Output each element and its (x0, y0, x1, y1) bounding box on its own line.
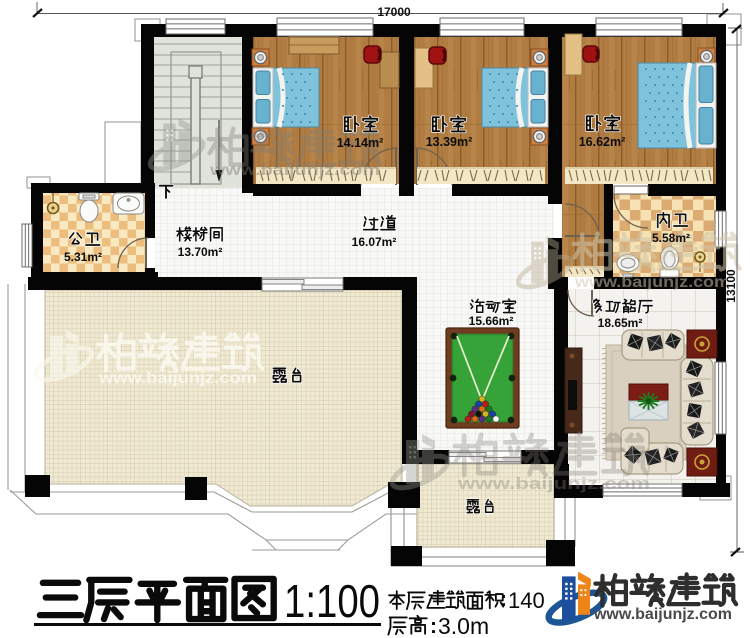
svg-text:www.baijunjz.com: www.baijunjz.com (209, 162, 380, 179)
svg-text::: : (500, 588, 507, 611)
svg-text:www.baijunjz.com: www.baijunjz.com (574, 274, 730, 291)
svg-text:13.39m²: 13.39m² (426, 135, 473, 149)
svg-text:15.66m²: 15.66m² (469, 314, 514, 328)
svg-text:www.baijunjz.com: www.baijunjz.com (98, 370, 257, 387)
svg-text::: : (430, 615, 437, 638)
svg-text:5.58m²: 5.58m² (652, 231, 690, 245)
svg-text:www.baijunjz.com: www.baijunjz.com (593, 606, 732, 623)
svg-text:14.14m²: 14.14m² (337, 136, 384, 150)
svg-text:13100: 13100 (724, 269, 738, 303)
svg-text:5.31m²: 5.31m² (64, 250, 102, 264)
svg-text:16.62m²: 16.62m² (579, 135, 626, 149)
svg-text:16.07m²: 16.07m² (352, 235, 397, 249)
svg-text:17000: 17000 (377, 5, 411, 19)
svg-text:18.65m²: 18.65m² (598, 316, 643, 330)
svg-text:13.70m²: 13.70m² (178, 245, 223, 259)
svg-text:www.baijunjz.com: www.baijunjz.com (457, 474, 650, 493)
svg-text:1:100: 1:100 (284, 575, 380, 627)
svg-text:3.0m: 3.0m (438, 613, 489, 638)
svg-text:140: 140 (508, 588, 545, 613)
